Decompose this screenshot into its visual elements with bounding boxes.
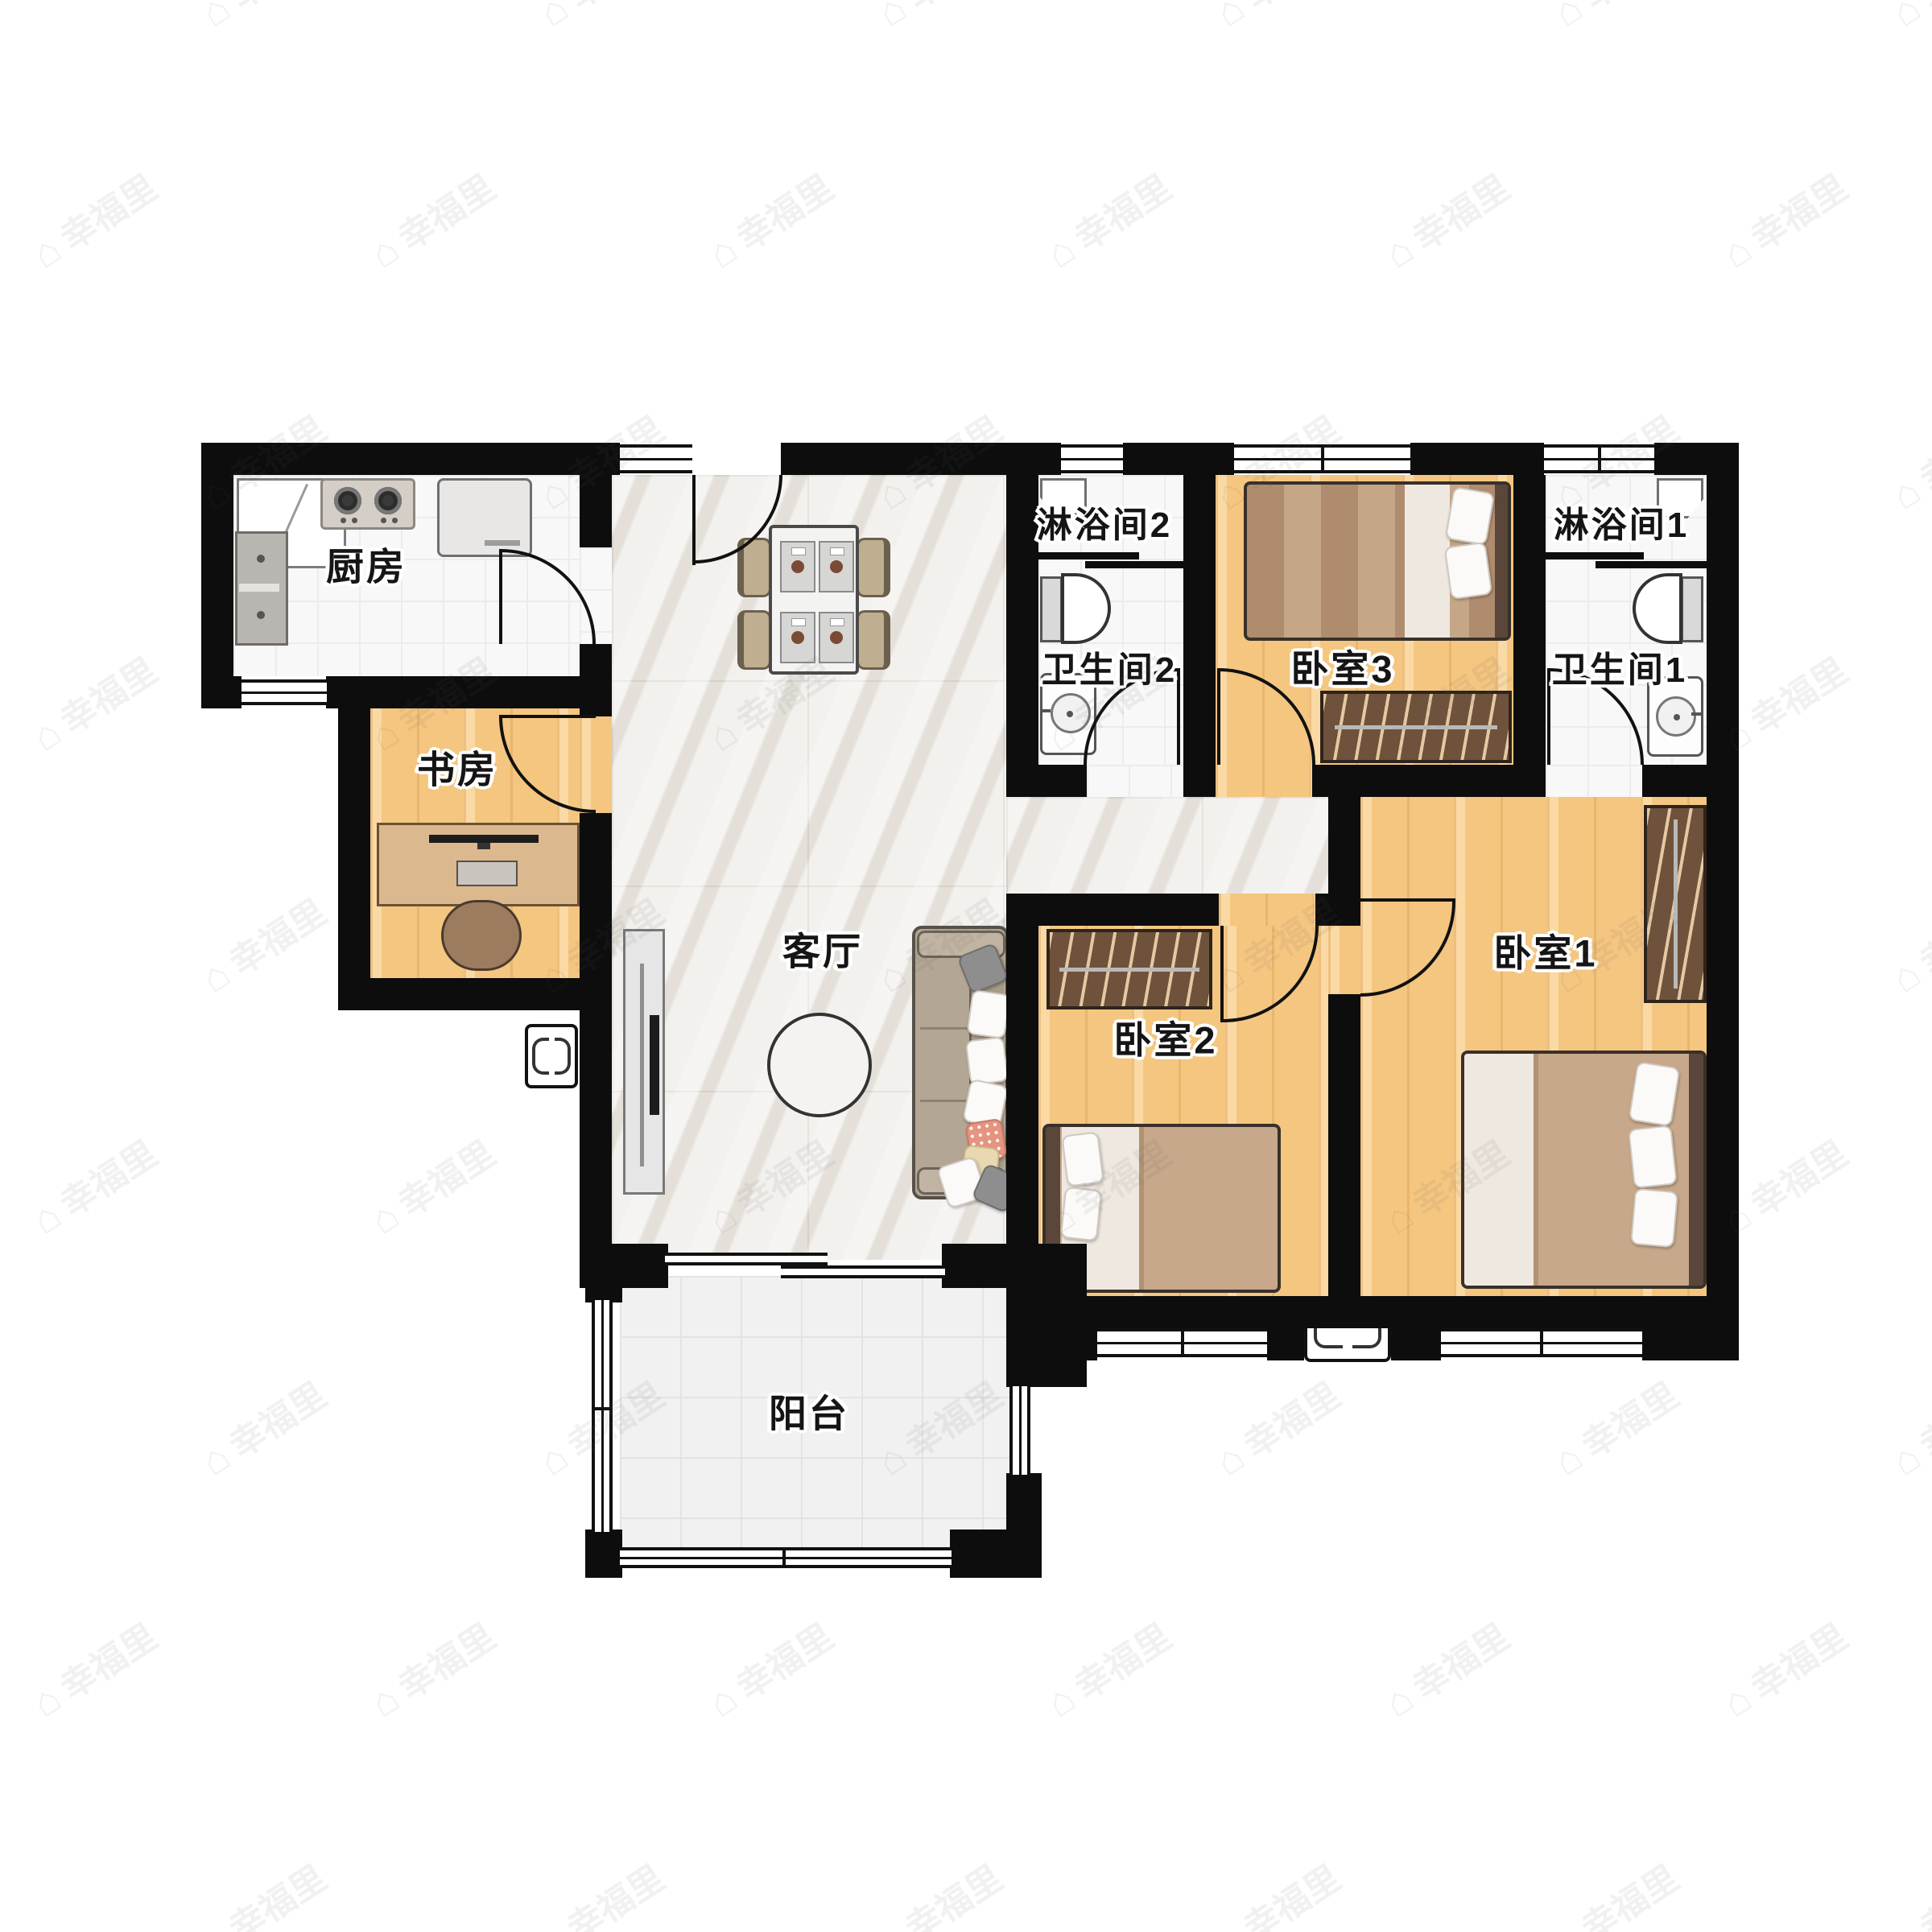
room-label-living: 客厅 — [782, 921, 863, 976]
room-label-shower1: 淋浴间1 — [1554, 496, 1689, 547]
room-label-balcony: 阳台 — [769, 1383, 849, 1439]
room-label-study: 书房 — [417, 739, 497, 795]
room-label-kitchen: 厨房 — [326, 536, 407, 592]
room-label-bedroom2: 卧室2 — [1113, 1009, 1217, 1065]
labels-layer: 厨房 书房 客厅 阳台 淋浴间2 卫生间2 卧室3 淋浴间1 卫生间1 卧室2 … — [0, 0, 1932, 1932]
room-label-bath2: 卫生间2 — [1042, 641, 1177, 692]
room-label-bedroom3: 卧室3 — [1290, 638, 1394, 694]
floor-plan: 厨房 书房 客厅 阳台 淋浴间2 卫生间2 卧室3 淋浴间1 卫生间1 卧室2 … — [0, 0, 1932, 1932]
room-label-shower2: 淋浴间2 — [1037, 496, 1172, 547]
room-label-bath1: 卫生间1 — [1552, 641, 1687, 692]
room-label-bedroom1: 卧室1 — [1493, 923, 1597, 978]
